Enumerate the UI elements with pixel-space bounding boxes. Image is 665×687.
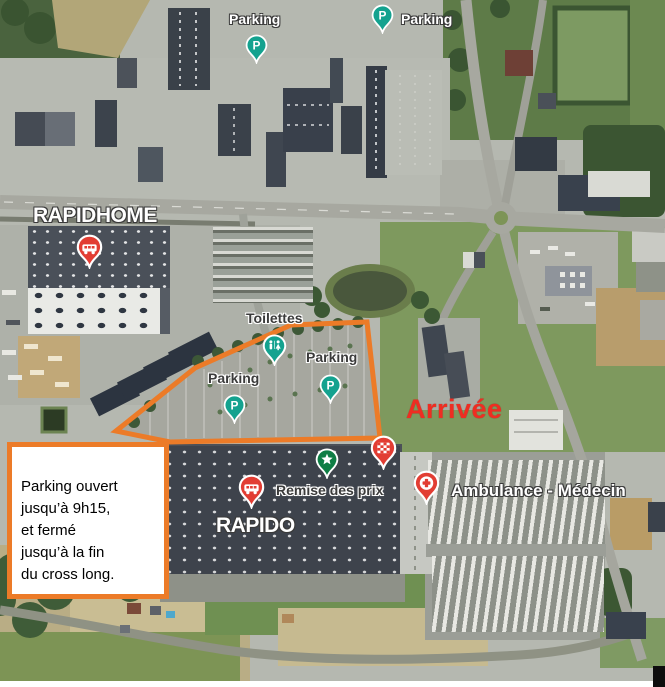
label-parking-top-left: Parking	[229, 12, 280, 26]
finish-flag-pin[interactable]	[370, 435, 397, 475]
medical-cross-icon	[420, 476, 434, 490]
label-parking-mid-left: Parking	[208, 371, 259, 385]
label-toilettes: Toilettes	[246, 311, 303, 325]
label-remise-des-prix: Remise des prix	[276, 483, 383, 497]
caravan-storage-rows	[213, 227, 313, 303]
checkered-flag-icon	[377, 443, 389, 454]
notice-text: Parking ouvert jusqu’à 9h15, et fermé ju…	[21, 478, 118, 583]
label-rapido: RAPIDO	[216, 515, 295, 536]
rv-lot-upper	[428, 460, 605, 546]
p-letter-icon: P	[231, 399, 239, 413]
label-ambulance-medecin: Ambulance - Médecin	[451, 482, 626, 499]
rv-dealer-pin-rapido[interactable]	[238, 474, 265, 514]
ambulance-pin[interactable]	[413, 470, 440, 510]
toilets-pin[interactable]	[262, 334, 287, 371]
parking-pin-mid-left[interactable]: P	[223, 394, 246, 429]
label-rapidhome: RAPIDHOME	[33, 205, 157, 226]
rapido-building-roof	[162, 446, 400, 574]
p-letter-icon: P	[327, 379, 335, 393]
parking-pin-top-left[interactable]: P	[245, 34, 268, 69]
rv-lot-lower	[432, 556, 604, 632]
p-letter-icon: P	[379, 9, 387, 23]
map-canvas[interactable]: P P P P	[0, 0, 665, 687]
p-letter-icon: P	[253, 39, 261, 53]
parking-pin-mid-right[interactable]: P	[319, 374, 342, 409]
prize-ceremony-pin[interactable]	[315, 448, 339, 484]
small-pond	[42, 408, 66, 432]
label-parking-mid-right: Parking	[306, 350, 357, 364]
rapidhome-building-white-section	[28, 288, 160, 334]
label-arrivee: Arrivée	[406, 396, 503, 423]
rv-dealer-pin-rapidhome[interactable]	[76, 234, 103, 274]
label-parking-top-right: Parking	[401, 12, 452, 26]
notice-box: Parking ouvert jusqu’à 9h15, et fermé ju…	[7, 442, 169, 599]
parking-pin-top-right[interactable]: P	[371, 4, 394, 39]
